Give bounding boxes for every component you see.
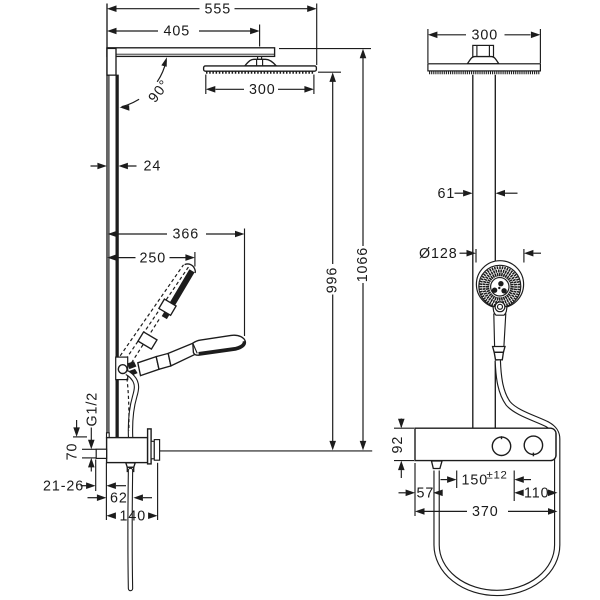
svg-text:150: 150: [462, 472, 489, 488]
svg-text:300: 300: [249, 82, 276, 98]
svg-text:366: 366: [173, 227, 200, 243]
svg-text:370: 370: [472, 504, 499, 520]
svg-text:57: 57: [417, 486, 435, 502]
svg-text:110: 110: [524, 486, 550, 502]
svg-text:300: 300: [472, 28, 499, 44]
svg-text:G1/2: G1/2: [84, 392, 100, 427]
svg-text:996: 996: [325, 267, 341, 294]
svg-text:140: 140: [120, 508, 147, 524]
svg-text:92: 92: [390, 436, 406, 454]
svg-text:405: 405: [164, 24, 191, 40]
svg-text:24: 24: [144, 159, 162, 175]
svg-text:Ø128: Ø128: [419, 246, 458, 262]
svg-text:250: 250: [140, 250, 167, 266]
svg-text:1066: 1066: [355, 247, 371, 282]
svg-text:21-26: 21-26: [43, 478, 84, 494]
svg-text:61: 61: [438, 186, 456, 202]
svg-text:70: 70: [64, 443, 80, 461]
svg-text:90°: 90°: [146, 77, 174, 106]
svg-text:62: 62: [110, 491, 128, 507]
svg-text:555: 555: [205, 1, 232, 17]
svg-text:±12: ±12: [487, 470, 508, 482]
